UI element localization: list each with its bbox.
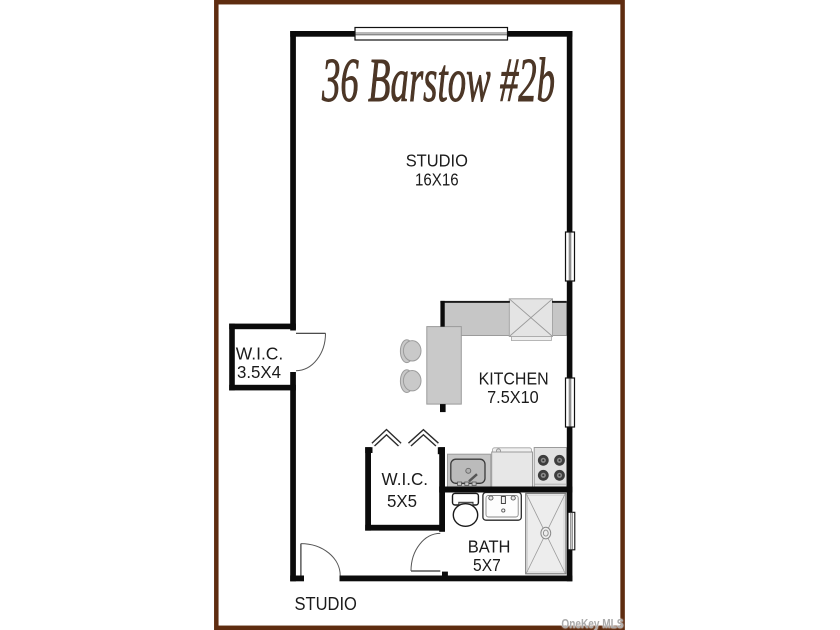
svg-text:W.I.C.: W.I.C.: [236, 344, 284, 364]
svg-text:36 Barstow #2b: 36 Barstow #2b: [321, 47, 555, 115]
svg-text:OneKey MLS: OneKey MLS: [561, 618, 623, 630]
svg-text:5X5: 5X5: [387, 491, 417, 511]
svg-text:16X16: 16X16: [415, 170, 459, 190]
svg-text:BATH: BATH: [468, 536, 511, 556]
svg-text:KITCHEN: KITCHEN: [479, 368, 549, 388]
svg-text:3.5X4: 3.5X4: [237, 362, 281, 382]
svg-text:STUDIO: STUDIO: [295, 594, 357, 614]
svg-text:5X7: 5X7: [473, 555, 501, 575]
svg-text:STUDIO: STUDIO: [406, 150, 468, 170]
svg-text:7.5X10: 7.5X10: [487, 387, 539, 407]
svg-text:W.I.C.: W.I.C.: [382, 469, 429, 489]
